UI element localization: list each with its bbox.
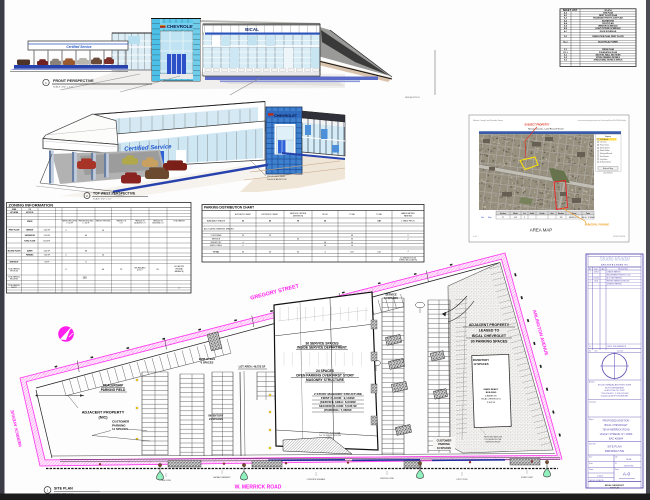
svg-text:4: 4 bbox=[242, 242, 243, 244]
svg-text:7,260 SF: 7,260 SF bbox=[44, 255, 50, 257]
svg-text:EMPLOYEES: EMPLOYEES bbox=[199, 357, 215, 361]
svg-text:12/18/13: 12/18/13 bbox=[593, 278, 599, 280]
svg-text:SERVICE: SERVICE bbox=[385, 293, 397, 297]
svg-text:NEW ROOF: NEW ROOF bbox=[10, 262, 19, 264]
svg-text:INTERIOR GROUP: INTERIOR GROUP bbox=[486, 442, 502, 444]
svg-text:INVENTORY: INVENTORY bbox=[211, 242, 223, 244]
svg-text:ALLOCATED PARKING SPACES: ALLOCATED PARKING SPACES bbox=[204, 228, 234, 231]
svg-text:SITE PLAN: SITE PLAN bbox=[54, 487, 73, 491]
svg-text:studiokhadal@OPTONLINE.NET: studiokhadal@OPTONLINE.NET bbox=[601, 395, 630, 398]
svg-text:CHEVROLET: CHEVROLET bbox=[167, 24, 196, 30]
svg-text:37: 37 bbox=[502, 217, 504, 219]
svg-text:PARKING DISTRIBUTION CHART: PARKING DISTRIBUTION CHART bbox=[204, 206, 254, 210]
svg-text:T 516.676.0057 F 516.676.005: T 516.676.0057 F 516.676.0059 bbox=[600, 393, 628, 395]
svg-text:23: 23 bbox=[269, 235, 271, 237]
svg-text:MAKE READY: MAKE READY bbox=[484, 388, 499, 391]
svg-text:AS NOTED: AS NOTED bbox=[624, 465, 634, 468]
svg-text:REQUIRED: REQUIRED bbox=[10, 279, 19, 281]
svg-text:CANOPY: CANOPY bbox=[326, 436, 334, 439]
svg-text:6: 6 bbox=[242, 245, 243, 247]
svg-text:Refresh Map: Refresh Map bbox=[603, 168, 613, 170]
svg-text:INVENTORY: INVENTORY bbox=[209, 414, 224, 418]
svg-text:SERVICE: SERVICE bbox=[26, 230, 33, 232]
svg-text:Drawn:: Drawn: bbox=[589, 469, 594, 471]
svg-text:No: No bbox=[589, 268, 591, 270]
svg-text:1 of 1: 1 of 1 bbox=[473, 236, 477, 238]
svg-text:SCALE: 3/32" = 1'-0": SCALE: 3/32" = 1'-0" bbox=[93, 198, 112, 201]
svg-text:PARKING FIELD: PARKING FIELD bbox=[101, 388, 126, 392]
svg-text:(LEASED BY: (LEASED BY bbox=[485, 395, 497, 398]
svg-text:Map: Map bbox=[488, 217, 492, 219]
svg-text:LOT AREA: 49,722 SF: LOT AREA: 49,722 SF bbox=[239, 365, 266, 369]
svg-text:Info: Info bbox=[481, 217, 484, 219]
svg-text:AREA MAP: AREA MAP bbox=[530, 228, 553, 233]
svg-text:12 SPACES: 12 SPACES bbox=[473, 362, 488, 366]
svg-text:MASONRY STRUCTURE: MASONRY STRUCTURE bbox=[306, 378, 345, 382]
svg-text:18,128 SF: 18,128 SF bbox=[43, 240, 50, 242]
svg-text:DEFICIT: DEFICIT bbox=[11, 287, 17, 289]
svg-text:30 PARKING SPACES: 30 PARKING SPACES bbox=[471, 340, 508, 344]
svg-text:Suffix: Suffix bbox=[530, 213, 535, 215]
svg-text:REQUIREMENT FROM PCTO 150: REQUIREMENT FROM PCTO 150 bbox=[607, 275, 631, 277]
svg-text:CHEVROLET: CHEVROLET bbox=[274, 113, 298, 118]
svg-text:OPEN PARKING OVER FIRST STORY: OPEN PARKING OVER FIRST STORY bbox=[296, 374, 355, 378]
svg-text:BUILDING: BUILDING bbox=[486, 392, 497, 394]
svg-text:INSIDE SERVICE DEPARTMENT: INSIDE SERVICE DEPARTMENT bbox=[297, 345, 347, 349]
svg-text:ADJACENT PROPERTY: ADJACENT PROPERTY bbox=[82, 411, 125, 415]
svg-text:12/9/13: 12/9/13 bbox=[594, 272, 599, 274]
svg-text:EXISTING CURB: EXISTING CURB bbox=[380, 478, 394, 480]
svg-text:Condo: Condo bbox=[539, 213, 544, 215]
svg-text:94 HOOVER AVENUE: 94 HOOVER AVENUE bbox=[605, 386, 625, 389]
svg-text:(NIC): (NIC) bbox=[98, 416, 108, 420]
svg-text:PROPOSED ADDITION: PROPOSED ADDITION bbox=[603, 420, 630, 423]
svg-text:ADJACENT PROPERTY: ADJACENT PROPERTY bbox=[469, 323, 510, 327]
svg-text:Town: Town bbox=[586, 213, 590, 215]
svg-text:2nd FLR ADDITION: 2nd FLR ADDITION bbox=[267, 178, 287, 181]
svg-text:Scale:: Scale: bbox=[589, 463, 593, 465]
svg-text:(INTERIOR): (INTERIOR) bbox=[293, 216, 304, 218]
svg-text:BICAL CHEVROLET: BICAL CHEVROLET bbox=[605, 484, 625, 487]
svg-text:ROOF: ROOF bbox=[322, 214, 328, 216]
svg-text:LOT: LOT bbox=[120, 223, 123, 225]
svg-text:3,300 SF: 3,300 SF bbox=[487, 402, 496, 404]
svg-text:FIRST FLOOR: FIRST FLOOR bbox=[9, 230, 20, 232]
svg-text:SITE PLAN: SITE PLAN bbox=[607, 445, 621, 449]
svg-text:STREET LIGHT: STREET LIGHT bbox=[521, 477, 533, 479]
svg-text:6 SPACES: 6 SPACES bbox=[201, 361, 214, 365]
svg-text:CONCRETE SIDEWALK: CONCRETE SIDEWALK bbox=[307, 478, 326, 481]
svg-text:30: 30 bbox=[297, 239, 299, 241]
svg-text:Parcel Lines: Parcel Lines bbox=[600, 145, 609, 147]
svg-text:EXTERIOR / WEST: EXTERIOR / WEST bbox=[262, 214, 280, 216]
svg-text:A-0: A-0 bbox=[623, 472, 631, 477]
svg-text:Nassau County Land Records Vie: Nassau County Land Records Viewer bbox=[473, 119, 503, 122]
svg-text:C-2: C-2 bbox=[28, 209, 31, 211]
svg-text:Number: Number bbox=[558, 213, 564, 215]
svg-text:BICAL: BICAL bbox=[626, 458, 631, 461]
svg-text:W. MERRICK ROAD: W. MERRICK ROAD bbox=[235, 485, 282, 491]
svg-text:ZONE: ZONE bbox=[12, 209, 16, 211]
svg-text:NEW ADDITION: NEW ADDITION bbox=[405, 96, 420, 99]
svg-text:PARKING: PARKING bbox=[404, 215, 413, 218]
svg-text:4: 4 bbox=[407, 251, 408, 253]
svg-text:789 W MERRICK ROAD: 789 W MERRICK ROAD bbox=[602, 429, 630, 432]
svg-text:12/4/13 DOB SUBMISSION: 12/4/13 DOB SUBMISSION bbox=[607, 346, 626, 348]
svg-text:Studio khadal: Studio khadal bbox=[599, 257, 630, 263]
svg-text:SUBJECT PROPERTY: SUBJECT PROPERTY bbox=[525, 124, 550, 127]
svg-text:2: 2 bbox=[407, 235, 408, 237]
svg-text:SCALE: 3/32" = 1'-0": SCALE: 3/32" = 1'-0" bbox=[53, 86, 73, 89]
svg-text:21 SPACES: 21 SPACES bbox=[209, 417, 223, 421]
svg-text:Layers: Layers bbox=[605, 136, 611, 138]
svg-text:24 SPACES: 24 SPACES bbox=[316, 369, 335, 373]
svg-text:456: 456 bbox=[514, 217, 517, 219]
svg-text:4/24/13 7:46 PM: 4/24/13 7:46 PM bbox=[613, 236, 625, 238]
svg-text:Municipal Bound.: Municipal Bound. bbox=[600, 153, 613, 155]
svg-text:11 SPACES: 11 SPACES bbox=[112, 427, 128, 431]
svg-text:2/14/14: 2/14/14 bbox=[597, 475, 603, 477]
svg-text:BICAL CHEVROLET): BICAL CHEVROLET) bbox=[481, 398, 500, 401]
svg-text:BAC #26684: BAC #26684 bbox=[609, 438, 624, 441]
svg-text:789: 789 bbox=[560, 217, 563, 219]
svg-text:PROVIDED: PROVIDED bbox=[10, 271, 19, 273]
svg-text:EMPLOYEES: EMPLOYEES bbox=[210, 245, 222, 247]
svg-text:Certified Service: Certified Service bbox=[66, 45, 91, 49]
svg-text:VARIANCE): VARIANCE) bbox=[174, 270, 184, 273]
svg-text:No: No bbox=[589, 351, 591, 353]
svg-text:PROPOSED NEW: PROPOSED NEW bbox=[267, 176, 286, 178]
svg-text:10 SPACES: 10 SPACES bbox=[437, 446, 451, 450]
svg-text:ZONING INFORMATION: ZONING INFORMATION bbox=[9, 202, 54, 207]
svg-text:TOTAL: TOTAL bbox=[213, 251, 220, 254]
svg-text:(Use Refresh: (Use Refresh bbox=[603, 173, 613, 175]
svg-text:DEALERSHIP: DEALERSHIP bbox=[103, 384, 124, 388]
svg-text:Nassau County - Land Record Vi: Nassau County - Land Record Viewer bbox=[528, 128, 564, 131]
svg-text:UTILITY POLE: UTILITY POLE bbox=[456, 479, 468, 481]
svg-text:1 / 300 SF: 1 / 300 SF bbox=[83, 223, 90, 225]
svg-text:TOTAL: TOTAL bbox=[376, 213, 382, 216]
svg-text:730 SF: 730 SF bbox=[44, 262, 49, 264]
svg-text:2: 2 bbox=[407, 239, 408, 241]
svg-text:16: 16 bbox=[351, 245, 353, 247]
svg-text:2/4/14: 2/4/14 bbox=[594, 281, 598, 283]
svg-text:1 / 200 SF: 1 / 200 SF bbox=[66, 223, 73, 225]
svg-text:MUNICIPAL PARKING: MUNICIPAL PARKING bbox=[585, 224, 610, 227]
svg-text:BICAL CHEVROLET: BICAL CHEVROLET bbox=[472, 334, 507, 338]
svg-text:8,242 SF: 8,242 SF bbox=[44, 251, 50, 253]
svg-text:30: 30 bbox=[324, 242, 326, 244]
svg-text:30: 30 bbox=[351, 239, 353, 241]
svg-text:SERVICE: SERVICE bbox=[212, 239, 221, 241]
svg-text:STUDIO KHADAL ARCHITECTURE: STUDIO KHADAL ARCHITECTURE bbox=[598, 384, 632, 387]
svg-text:ASPHALT PAVEMENT: ASPHALT PAVEMENT bbox=[213, 476, 230, 479]
svg-text:CUSTOMER: CUSTOMER bbox=[437, 439, 452, 443]
svg-text:Block: Block bbox=[513, 213, 517, 215]
svg-text:TOP WEST PERSPECTIVE: TOP WEST PERSPECTIVE bbox=[93, 192, 136, 196]
svg-text:50: 50 bbox=[351, 242, 353, 244]
svg-text:LEASED TO: LEASED TO bbox=[479, 329, 500, 333]
svg-text:BICAL: BICAL bbox=[245, 27, 259, 32]
svg-text:16: 16 bbox=[324, 245, 326, 247]
svg-text:(2) 45 x 7: (2) 45 x 7 bbox=[137, 270, 144, 272]
svg-text:CUSTOMER: CUSTOMER bbox=[211, 235, 222, 237]
svg-text:AVAILABLE SPACES: AVAILABLE SPACES bbox=[207, 219, 226, 222]
svg-text:A R C H I T E C T U R E P C: A R C H I T E C T U R E P C bbox=[601, 264, 628, 267]
svg-text:NEW CURB: NEW CURB bbox=[161, 480, 171, 482]
svg-text:23: 23 bbox=[242, 235, 244, 237]
svg-text:PARKING: PARKING bbox=[438, 442, 450, 446]
svg-text:TOTAL: TOTAL bbox=[349, 213, 355, 216]
svg-text:11 SPACES: 11 SPACES bbox=[384, 296, 398, 300]
svg-text:FRONT PERSPECTIVE: FRONT PERSPECTIVE bbox=[53, 79, 94, 83]
svg-text:VALLEY STREAM, NY 11580: VALLEY STREAM, NY 11580 bbox=[600, 433, 633, 436]
svg-text:PERSPECTIVE: PERSPECTIVE bbox=[605, 449, 625, 453]
svg-text:EXTERIOR / EAST: EXTERIOR / EAST bbox=[235, 213, 252, 216]
svg-text:(PARKING: 7,360SF: (PARKING: 7,360SF bbox=[324, 408, 352, 412]
svg-text:GLEN COVE, NY 11542: GLEN COVE, NY 11542 bbox=[604, 390, 624, 392]
svg-text:SITE PLAN: SITE PLAN bbox=[610, 487, 620, 490]
svg-text:8,242 SF: 8,242 SF bbox=[44, 230, 50, 232]
svg-text:46: 46 bbox=[351, 235, 353, 237]
svg-text:1 SPACE PER 25: 1 SPACE PER 25 bbox=[401, 219, 414, 222]
svg-text:SECOND FLOOR: SECOND FLOOR bbox=[8, 251, 22, 253]
svg-text:3: 3 bbox=[524, 217, 525, 219]
svg-text:BICAL CHEVROLET: BICAL CHEVROLET bbox=[604, 424, 628, 427]
svg-text:9,134 SF: 9,134 SF bbox=[44, 235, 50, 237]
svg-text:SHOWROOM: SHOWROOM bbox=[25, 235, 36, 237]
svg-text:158: 158 bbox=[82, 276, 87, 280]
